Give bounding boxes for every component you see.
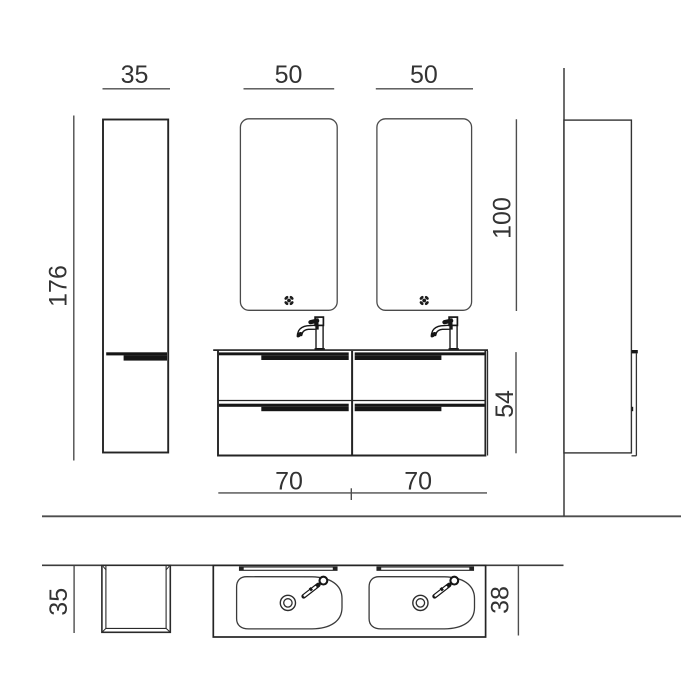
svg-text:70: 70	[404, 468, 432, 496]
svg-text:70: 70	[275, 468, 303, 496]
svg-text:38: 38	[487, 586, 515, 614]
svg-text:176: 176	[45, 265, 73, 307]
svg-text:100: 100	[489, 197, 517, 239]
svg-text:35: 35	[121, 61, 149, 89]
svg-text:50: 50	[410, 61, 438, 89]
svg-text:35: 35	[45, 588, 73, 616]
svg-text:50: 50	[275, 61, 303, 89]
svg-text:54: 54	[491, 390, 519, 418]
